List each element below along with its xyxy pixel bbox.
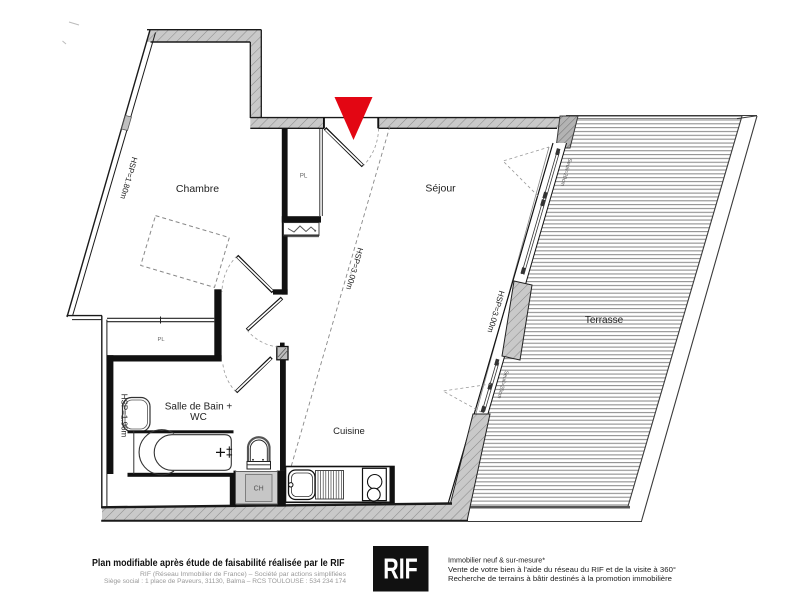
svg-text:RIF (Réseau Immobilier de Fran: RIF (Réseau Immobilier de France) – Soci… (140, 571, 346, 578)
svg-text:Chambre: Chambre (176, 183, 219, 195)
svg-text:Terrasse: Terrasse (585, 315, 624, 326)
svg-text:Vente de votre bien à l'aide d: Vente de votre bien à l'aide du réseau d… (448, 565, 676, 574)
svg-text:Recherche de terrains à bâtir: Recherche de terrains à bâtir destinés à… (448, 574, 672, 583)
svg-text:RIF: RIF (383, 554, 418, 586)
svg-text:HSP=1.96m: HSP=1.96m (119, 394, 128, 438)
svg-text:PL: PL (300, 173, 308, 180)
svg-text:Plan modifiable après étude de: Plan modifiable après étude de faisabili… (92, 557, 345, 569)
svg-text:Immobilier neuf & sur-mesure*: Immobilier neuf & sur-mesure* (448, 556, 545, 565)
svg-text:Cuisine: Cuisine (333, 426, 365, 437)
svg-text:PL: PL (157, 337, 165, 343)
svg-text:Siège social : 1 place de Pave: Siège social : 1 place de Paveurs, 31130… (104, 578, 347, 585)
svg-text:Séjour: Séjour (425, 183, 456, 195)
svg-text:Salle de Bain +: Salle de Bain + (165, 402, 233, 413)
svg-text:CH: CH (254, 486, 264, 493)
svg-text:WC: WC (190, 412, 207, 423)
